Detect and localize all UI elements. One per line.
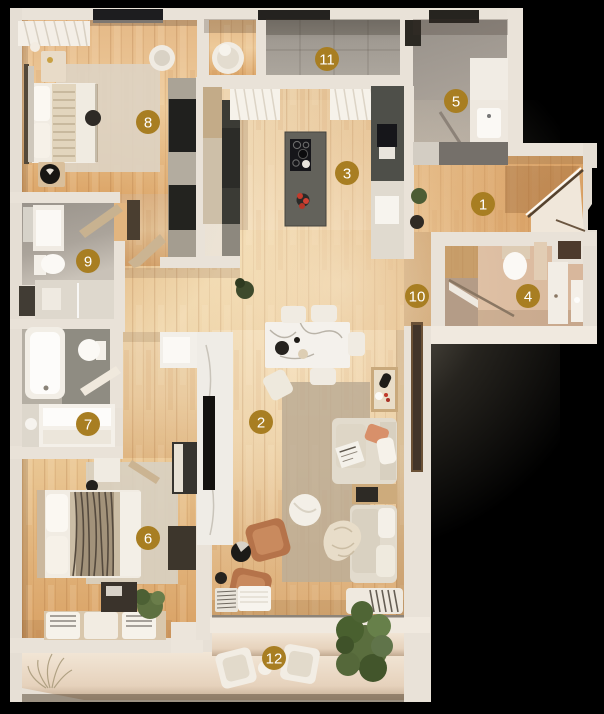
svg-text:5: 5: [452, 94, 460, 111]
svg-text:7: 7: [84, 417, 92, 434]
svg-text:10: 10: [409, 289, 426, 306]
svg-text:8: 8: [144, 115, 152, 132]
svg-text:4: 4: [524, 289, 532, 306]
svg-text:6: 6: [144, 531, 152, 548]
svg-text:1: 1: [479, 197, 487, 214]
svg-text:11: 11: [319, 52, 335, 69]
svg-text:12: 12: [266, 651, 283, 668]
svg-text:3: 3: [343, 166, 351, 183]
svg-text:2: 2: [257, 415, 265, 432]
svg-text:9: 9: [84, 254, 92, 271]
